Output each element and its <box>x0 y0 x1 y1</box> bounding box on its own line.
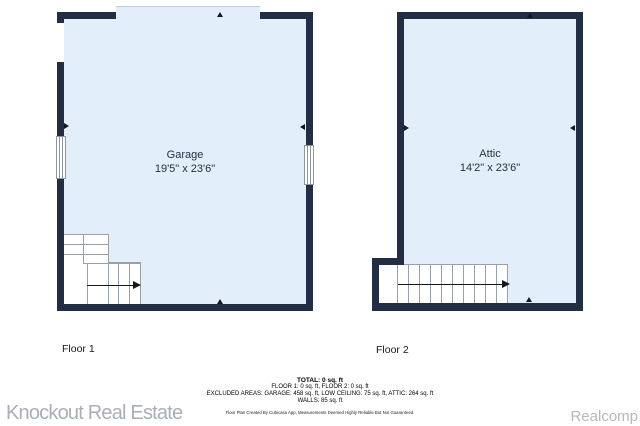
window-pane <box>307 146 311 184</box>
floor1-garage-door-opening <box>116 6 260 19</box>
window-pane <box>59 137 63 178</box>
wall-segment <box>397 12 404 265</box>
room-dimensions: 14'2" x 23'6" <box>460 161 520 175</box>
wall-segment <box>57 304 313 311</box>
watermark-realcomp: Realcomp <box>570 408 638 425</box>
room-name: Garage <box>167 148 204 162</box>
watermark-knockout: Knockout Real Estate <box>6 402 182 425</box>
room-dimensions: 19'5" x 23'6" <box>155 162 215 176</box>
wall-segment <box>57 179 64 304</box>
wall-segment <box>372 258 379 311</box>
wall-segment <box>397 12 583 19</box>
wall-segment <box>57 12 64 23</box>
wall-segment <box>306 185 313 304</box>
room-name: Attic <box>479 147 500 161</box>
summary-excluded: EXCLUDED AREAS: GARAGE: 458 sq. ft, LOW … <box>0 391 640 398</box>
wall-segment <box>576 12 583 311</box>
wall-tick-icon <box>217 12 223 17</box>
summary-floors: FLOOR 1: 0 sq. ft, FLOOR 2: 0 sq. ft <box>0 384 640 391</box>
summary-total: TOTAL: 0 sq. ft <box>0 377 640 384</box>
floor2-label: Floor 2 <box>376 344 409 356</box>
floor1-label: Floor 1 <box>62 343 95 355</box>
wall-segment <box>372 303 583 311</box>
room-label-garage: Garage 19'5" x 23'6" <box>64 19 306 304</box>
wall-segment <box>306 12 313 145</box>
room-label-attic: Attic 14'2" x 23'6" <box>404 19 576 303</box>
wall-segment <box>57 62 64 136</box>
wall-segment <box>57 12 116 19</box>
floorplan-canvas: Garage 19'5" x 23'6" <box>0 0 640 426</box>
wall-tick-icon <box>527 13 533 18</box>
